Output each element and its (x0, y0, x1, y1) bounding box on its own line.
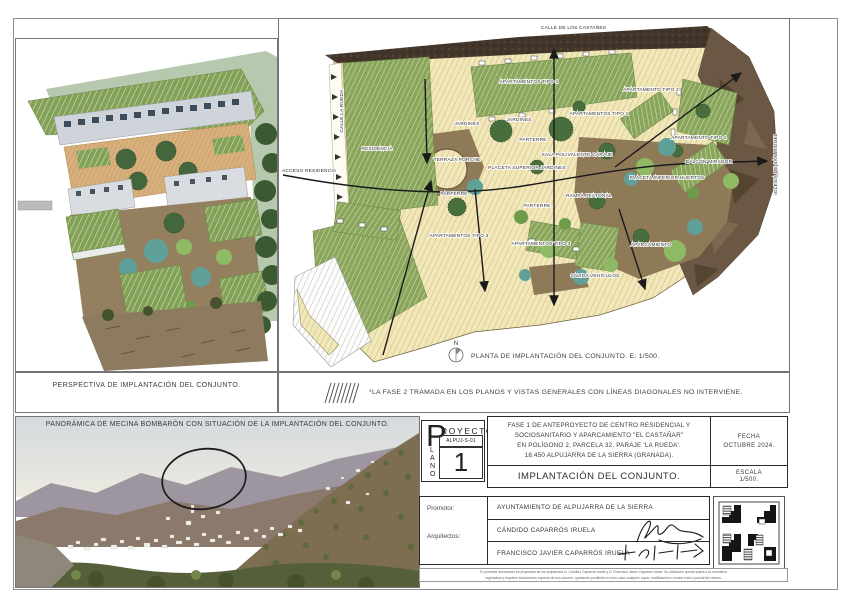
promotor-name: AYUNTAMIENTO DE ALPUJARRA DE LA SIERRA (497, 504, 653, 511)
promotor-label: Promotor: (427, 505, 455, 512)
foreground-vegetation (16, 562, 419, 587)
site-plan-drawing: CALLE DE LOS CASTAÑES CALLE LA RUEDA IGL… (279, 19, 789, 371)
project-description-line: 18.450 ALPUJARRA DE LA SIERRA (GRANADA). (488, 451, 710, 461)
promotor-row: AYUNTAMIENTO DE ALPUJARRA DE LA SIERRA (488, 497, 709, 519)
perspective-caption: PERSPECTIVA DE IMPLANTACIÓN DEL CONJUNTO… (15, 372, 278, 413)
label-apartamentos1-b: APARTAMENTOS TIPO 1 (569, 111, 628, 117)
panorama-photo-panel: PANORÁMICA DE MECINA BOMBARÓN CON SITUAC… (15, 416, 420, 588)
north-letter: N (454, 340, 459, 347)
badge-a: A (430, 455, 435, 462)
label-placeta-inferior: PLACETA INFERIOR HUERTOS (630, 175, 705, 181)
badge-o: O (430, 471, 435, 478)
label-rampa: RAMPA PEATONAL (566, 193, 612, 199)
studio-logo (713, 496, 785, 570)
label-apartamentos3-b: APARTAMENTOS TIPO 3 (511, 241, 570, 247)
panorama-photo (16, 417, 419, 587)
label-calle-rueda: CALLE LA RUEDA (339, 89, 345, 133)
label-apartamentos1-a: APARTAMENTOS TIPO 1 (499, 79, 558, 85)
project-description-cell: FASE 1 DE ANTEPROYECTO DE CENTRO RESIDEN… (488, 417, 711, 487)
site-plan-panel: CALLE DE LOS CASTAÑES CALLE LA RUEDA IGL… (278, 18, 790, 372)
label-aparcamiento: APARCAMIENTO (631, 242, 671, 248)
plan-caption: PLANTA DE IMPLANTACIÓN DEL CONJUNTO. E: … (471, 351, 659, 360)
stakeholders-box: Promotor: Arquitectos: AYUNTAMIENTO DE A… (419, 496, 710, 565)
label-apartamento2-b: APARTAMENTO TIPO 2 (671, 135, 727, 141)
perspective-3d-view (16, 39, 277, 371)
date-value: OCTUBRE 2024. (723, 443, 774, 449)
label-sala: SALA POLIVALENTE GARAJE (542, 152, 613, 158)
label-iglesia: IGLESIA DE SAN MIGUEL (773, 133, 779, 195)
label-parterre-a: PARTERRE (440, 191, 467, 197)
project-description-line: SOCIOSANITARIO Y APARCAMIENTO "EL CASTAÑ… (488, 431, 710, 441)
label-apartamentos3-a: APARTAMENTOS TIPO 3 (429, 233, 488, 239)
label-acceso: ACCESO RESIDENCIA (282, 168, 337, 174)
architect2-row: FRANCISCO JAVIER CAPARRÓS IRUELA (488, 541, 709, 564)
copyright-fine-print: El presente documento es propiedad de lo… (419, 568, 788, 582)
title-block: P ROYECTO L A N O ALPUJ-S-01 1 FASE 1 DE… (419, 416, 790, 583)
label-salida: SALIDA VEHÍCULOS (570, 272, 619, 279)
badge-n: N (430, 463, 435, 470)
label-placeta-superior: PLACETA SUPERIOR JARDINES (488, 165, 566, 171)
hatch-legend-icon (323, 381, 359, 405)
label-terraza: TERRAZA PORCHE (434, 157, 481, 163)
sheet-number: 1 (439, 446, 483, 479)
sheet-number-badge: P ROYECTO L A N O ALPUJ-S-01 1 (421, 420, 485, 482)
label-balcon: BALCÓN MIRADOR (686, 158, 733, 165)
photo-caption: PANORÁMICA DE MECINA BOMBARÓN CON SITUAC… (16, 421, 419, 428)
label-parterre-c: PARTERRE (519, 137, 546, 143)
drawing-sheet: PERSPECTIVA DE IMPLANTACIÓN DEL CONJUNTO… (0, 0, 850, 602)
role-labels: Promotor: Arquitectos: (420, 497, 488, 564)
architect1-row: CÁNDIDO CAPARRÓS IRUELA (488, 519, 709, 542)
perspective-view-panel (15, 38, 278, 372)
badge-l: L (430, 447, 434, 454)
label-jardines-b: JARDINES (506, 117, 531, 123)
phase2-note-strip: *LA FASE 2 TRAMADA EN LOS PLANOS Y VISTA… (278, 372, 790, 413)
arquitectos-label: Arquitectos: (427, 533, 460, 540)
label-residencia: RESIDENCIA (361, 146, 393, 152)
label-apartamento2-a: APARTAMENTO TIPO 2 (623, 87, 679, 93)
studio-logo-icon (718, 501, 780, 565)
architect2-name: FRANCISCO JAVIER CAPARRÓS IRUELA (497, 550, 630, 557)
date-label: FECHA (738, 434, 760, 440)
label-calle-castanes: CALLE DE LOS CASTAÑES (541, 24, 606, 31)
label-jardines-a: JARDINES (454, 121, 479, 127)
access-ramp-west (18, 201, 52, 210)
scale-label: ESCALA (736, 470, 762, 476)
project-info-box: FASE 1 DE ANTEPROYECTO DE CENTRO RESIDEN… (487, 416, 788, 488)
phase2-note-text: *LA FASE 2 TRAMADA EN LOS PLANOS Y VISTA… (369, 389, 743, 396)
label-parterre-b: PARTERRE (523, 203, 550, 209)
drawing-title: IMPLANTACIÓN DEL CONJUNTO. (488, 465, 710, 487)
architect1-name: CÁNDIDO CAPARRÓS IRUELA (497, 527, 595, 534)
date-scale-cell: FECHA OCTUBRE 2024. ESCALA 1/500. (711, 417, 787, 487)
project-description-line: EN POLÍGONO 2, PARCELA 32, PARAJE 'LA RU… (488, 441, 710, 451)
scale-value: 1/500. (739, 477, 758, 483)
project-description-line: FASE 1 DE ANTEPROYECTO DE CENTRO RESIDEN… (488, 421, 710, 431)
fine-print-line2: reguladora y requiere autorización expre… (420, 576, 787, 582)
